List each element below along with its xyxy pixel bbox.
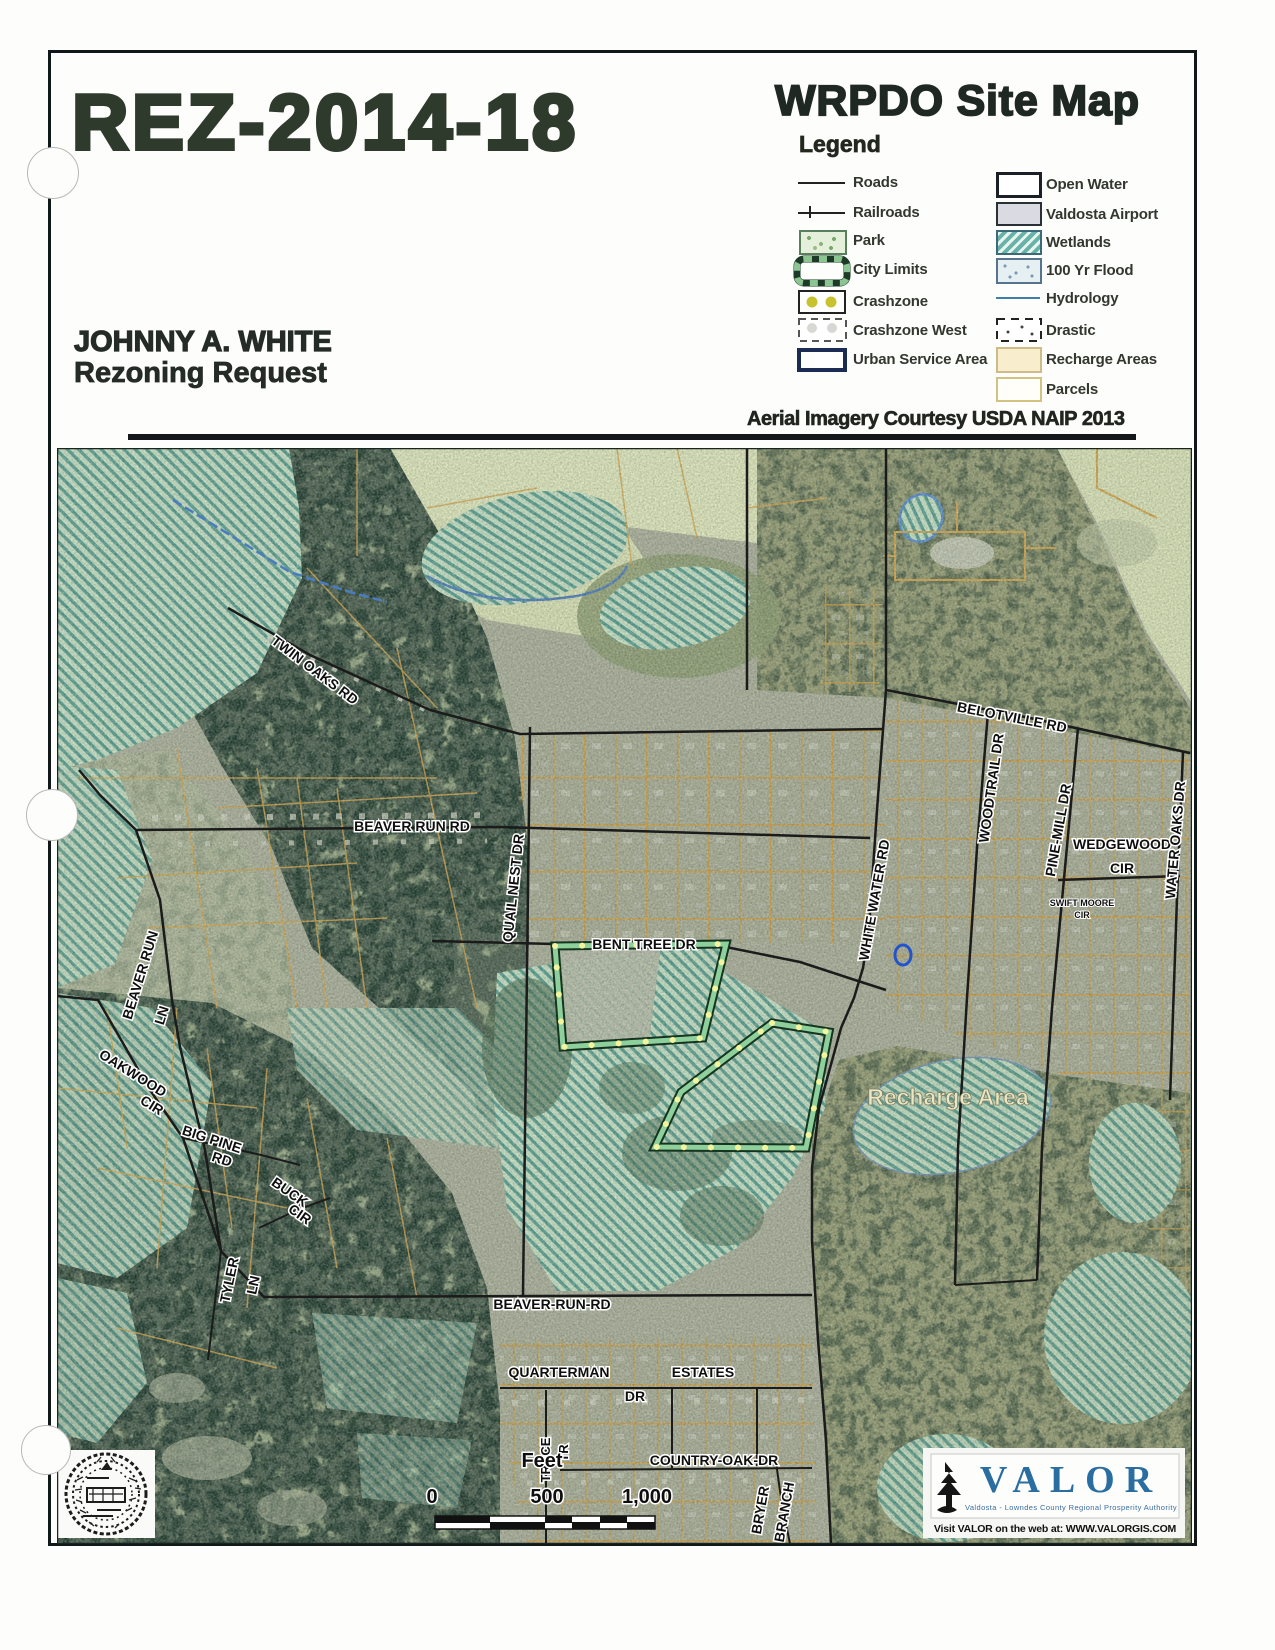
svg-text:1,000: 1,000: [622, 1486, 672, 1508]
svg-text:Recharge Area: Recharge Area: [867, 1084, 1029, 1110]
svg-text:Feet: Feet: [521, 1450, 562, 1472]
svg-text:CIR: CIR: [1074, 910, 1090, 920]
svg-text:0: 0: [426, 1486, 437, 1508]
svg-text:BEAVER-RUN-RD: BEAVER-RUN-RD: [493, 1296, 610, 1312]
svg-text:ESTATES: ESTATES: [672, 1364, 735, 1380]
svg-text:SWIFT MOORE: SWIFT MOORE: [1050, 898, 1115, 908]
svg-text:Visit VALOR on the web at: WWW: Visit VALOR on the web at: WWW.VALORGIS.…: [934, 1523, 1177, 1535]
svg-text:DR: DR: [625, 1388, 645, 1404]
svg-text:VALOR: VALOR: [980, 1459, 1162, 1501]
svg-text:QUARTERMAN: QUARTERMAN: [508, 1364, 609, 1380]
svg-text:500: 500: [530, 1486, 563, 1508]
svg-text:Valdosta - Lowndes County Regi: Valdosta - Lowndes County Regional Prosp…: [965, 1503, 1177, 1512]
svg-text:CIR: CIR: [1110, 860, 1134, 876]
svg-text:WEDGEWOOD: WEDGEWOOD: [1073, 836, 1171, 852]
svg-text:COUNTRY-OAK-DR: COUNTRY-OAK-DR: [650, 1452, 779, 1468]
svg-text:BENT TREE DR: BENT TREE DR: [592, 936, 695, 952]
svg-text:BEAVER RUN RD: BEAVER RUN RD: [354, 818, 470, 834]
